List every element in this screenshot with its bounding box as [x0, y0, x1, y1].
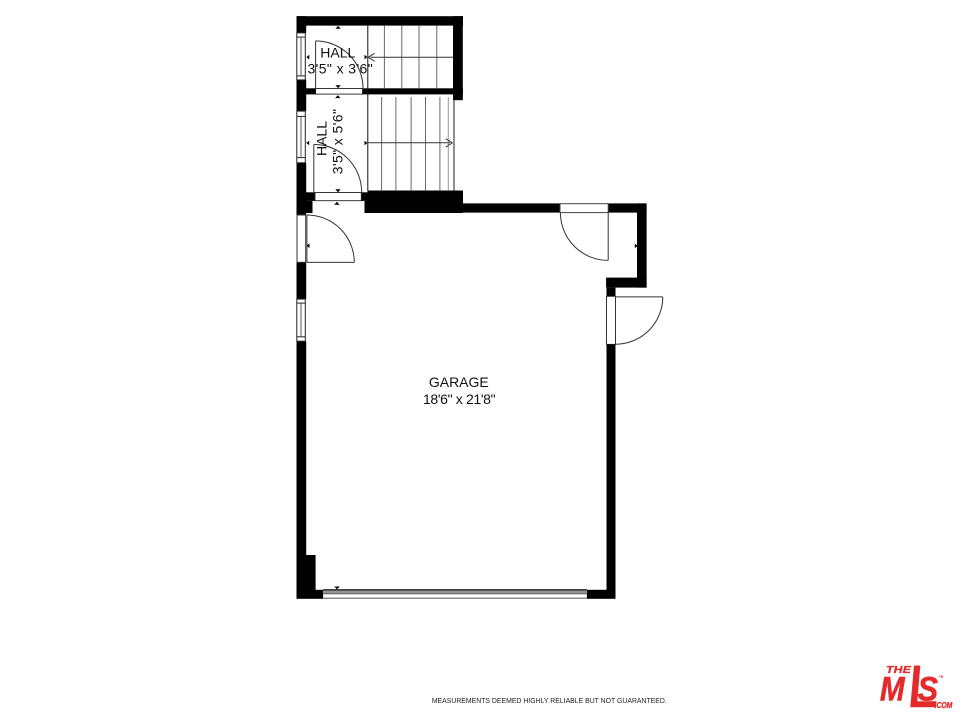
svg-text:3'5" x 3'6": 3'5" x 3'6" — [307, 61, 373, 77]
svg-text:18'6" x 21'8": 18'6" x 21'8" — [423, 391, 496, 407]
svg-text:MEASUREMENTS DEEMED HIGHLY REL: MEASUREMENTS DEEMED HIGHLY RELIABLE BUT … — [432, 698, 667, 705]
svg-text:HALL: HALL — [314, 121, 330, 156]
svg-text:M: M — [880, 669, 906, 707]
svg-text:3'5" x 5'6": 3'5" x 5'6" — [330, 109, 346, 175]
svg-text:GARAGE: GARAGE — [429, 374, 489, 390]
svg-text:TM: TM — [939, 675, 943, 679]
svg-text:.COM: .COM — [935, 701, 953, 711]
svg-text:HALL: HALL — [320, 44, 355, 60]
